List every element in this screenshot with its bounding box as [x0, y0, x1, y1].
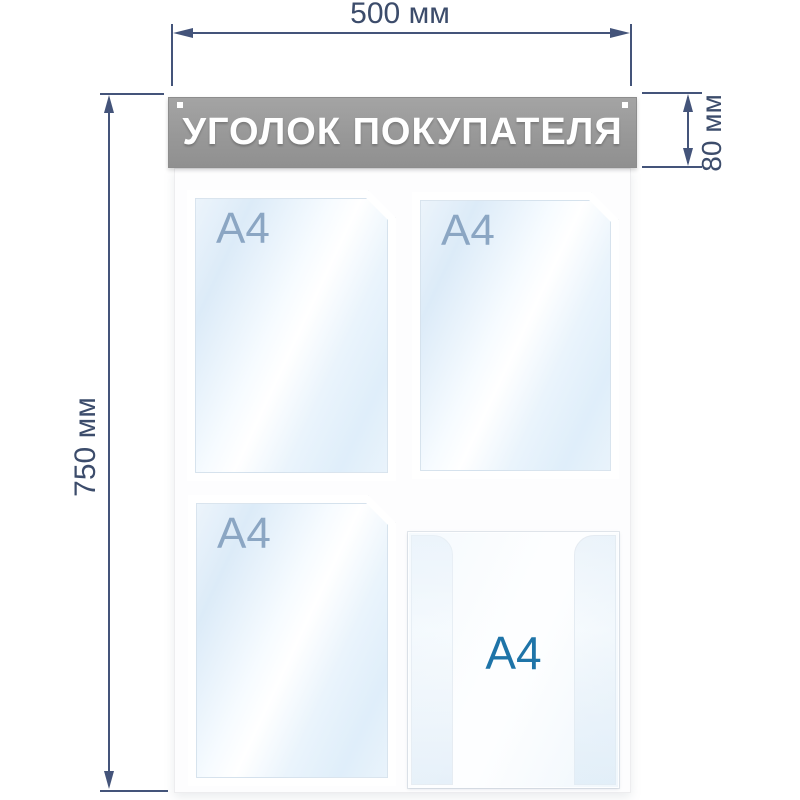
arrowhead-right-icon [610, 28, 630, 38]
dimension-height-ext-line-bottom [100, 790, 168, 792]
pocket-flat-bottom-left: A4 [188, 495, 396, 786]
a4-size-label: A4 [408, 630, 619, 676]
pocket-flat-top-left: A4 [187, 190, 396, 481]
a4-size-label: A4 [217, 512, 271, 556]
arrowhead-left-icon [173, 28, 193, 38]
product-diagram: 500 мм 750 мм 80 мм УГОЛОК ПОКУПАТЕЛЯ A4… [0, 0, 800, 800]
mounting-hole-right-icon [622, 102, 628, 108]
arrowhead-down-icon [683, 148, 693, 166]
a4-size-label: A4 [216, 207, 270, 251]
dimension-height-label: 750 мм [69, 397, 103, 497]
board-title: УГОЛОК ПОКУПАТЕЛЯ [182, 111, 622, 154]
dimension-header-height-label: 80 мм [696, 94, 728, 171]
arrowhead-down-icon [104, 771, 114, 789]
pocket-volumetric-bottom-right: A4 [408, 532, 619, 788]
dimension-height-arrow-line [108, 100, 110, 784]
pocket-film: A4 [420, 200, 611, 471]
dimension-header-ext-line-top [642, 92, 702, 94]
pocket-film: A4 [196, 503, 388, 778]
mounting-hole-left-icon [177, 102, 183, 108]
board-header: УГОЛОК ПОКУПАТЕЛЯ [168, 97, 637, 168]
dimension-header-ext-line-bottom [642, 166, 702, 168]
dimension-width-arrow-line [178, 32, 626, 34]
a4-size-label: A4 [441, 209, 495, 253]
dimension-width-ext-line-right [630, 24, 632, 86]
pocket-flat-top-right: A4 [412, 192, 619, 479]
arrowhead-up-icon [683, 94, 693, 112]
dimension-width-label: 500 мм [350, 0, 450, 31]
pocket-film: A4 [195, 198, 388, 473]
arrowhead-up-icon [104, 95, 114, 113]
